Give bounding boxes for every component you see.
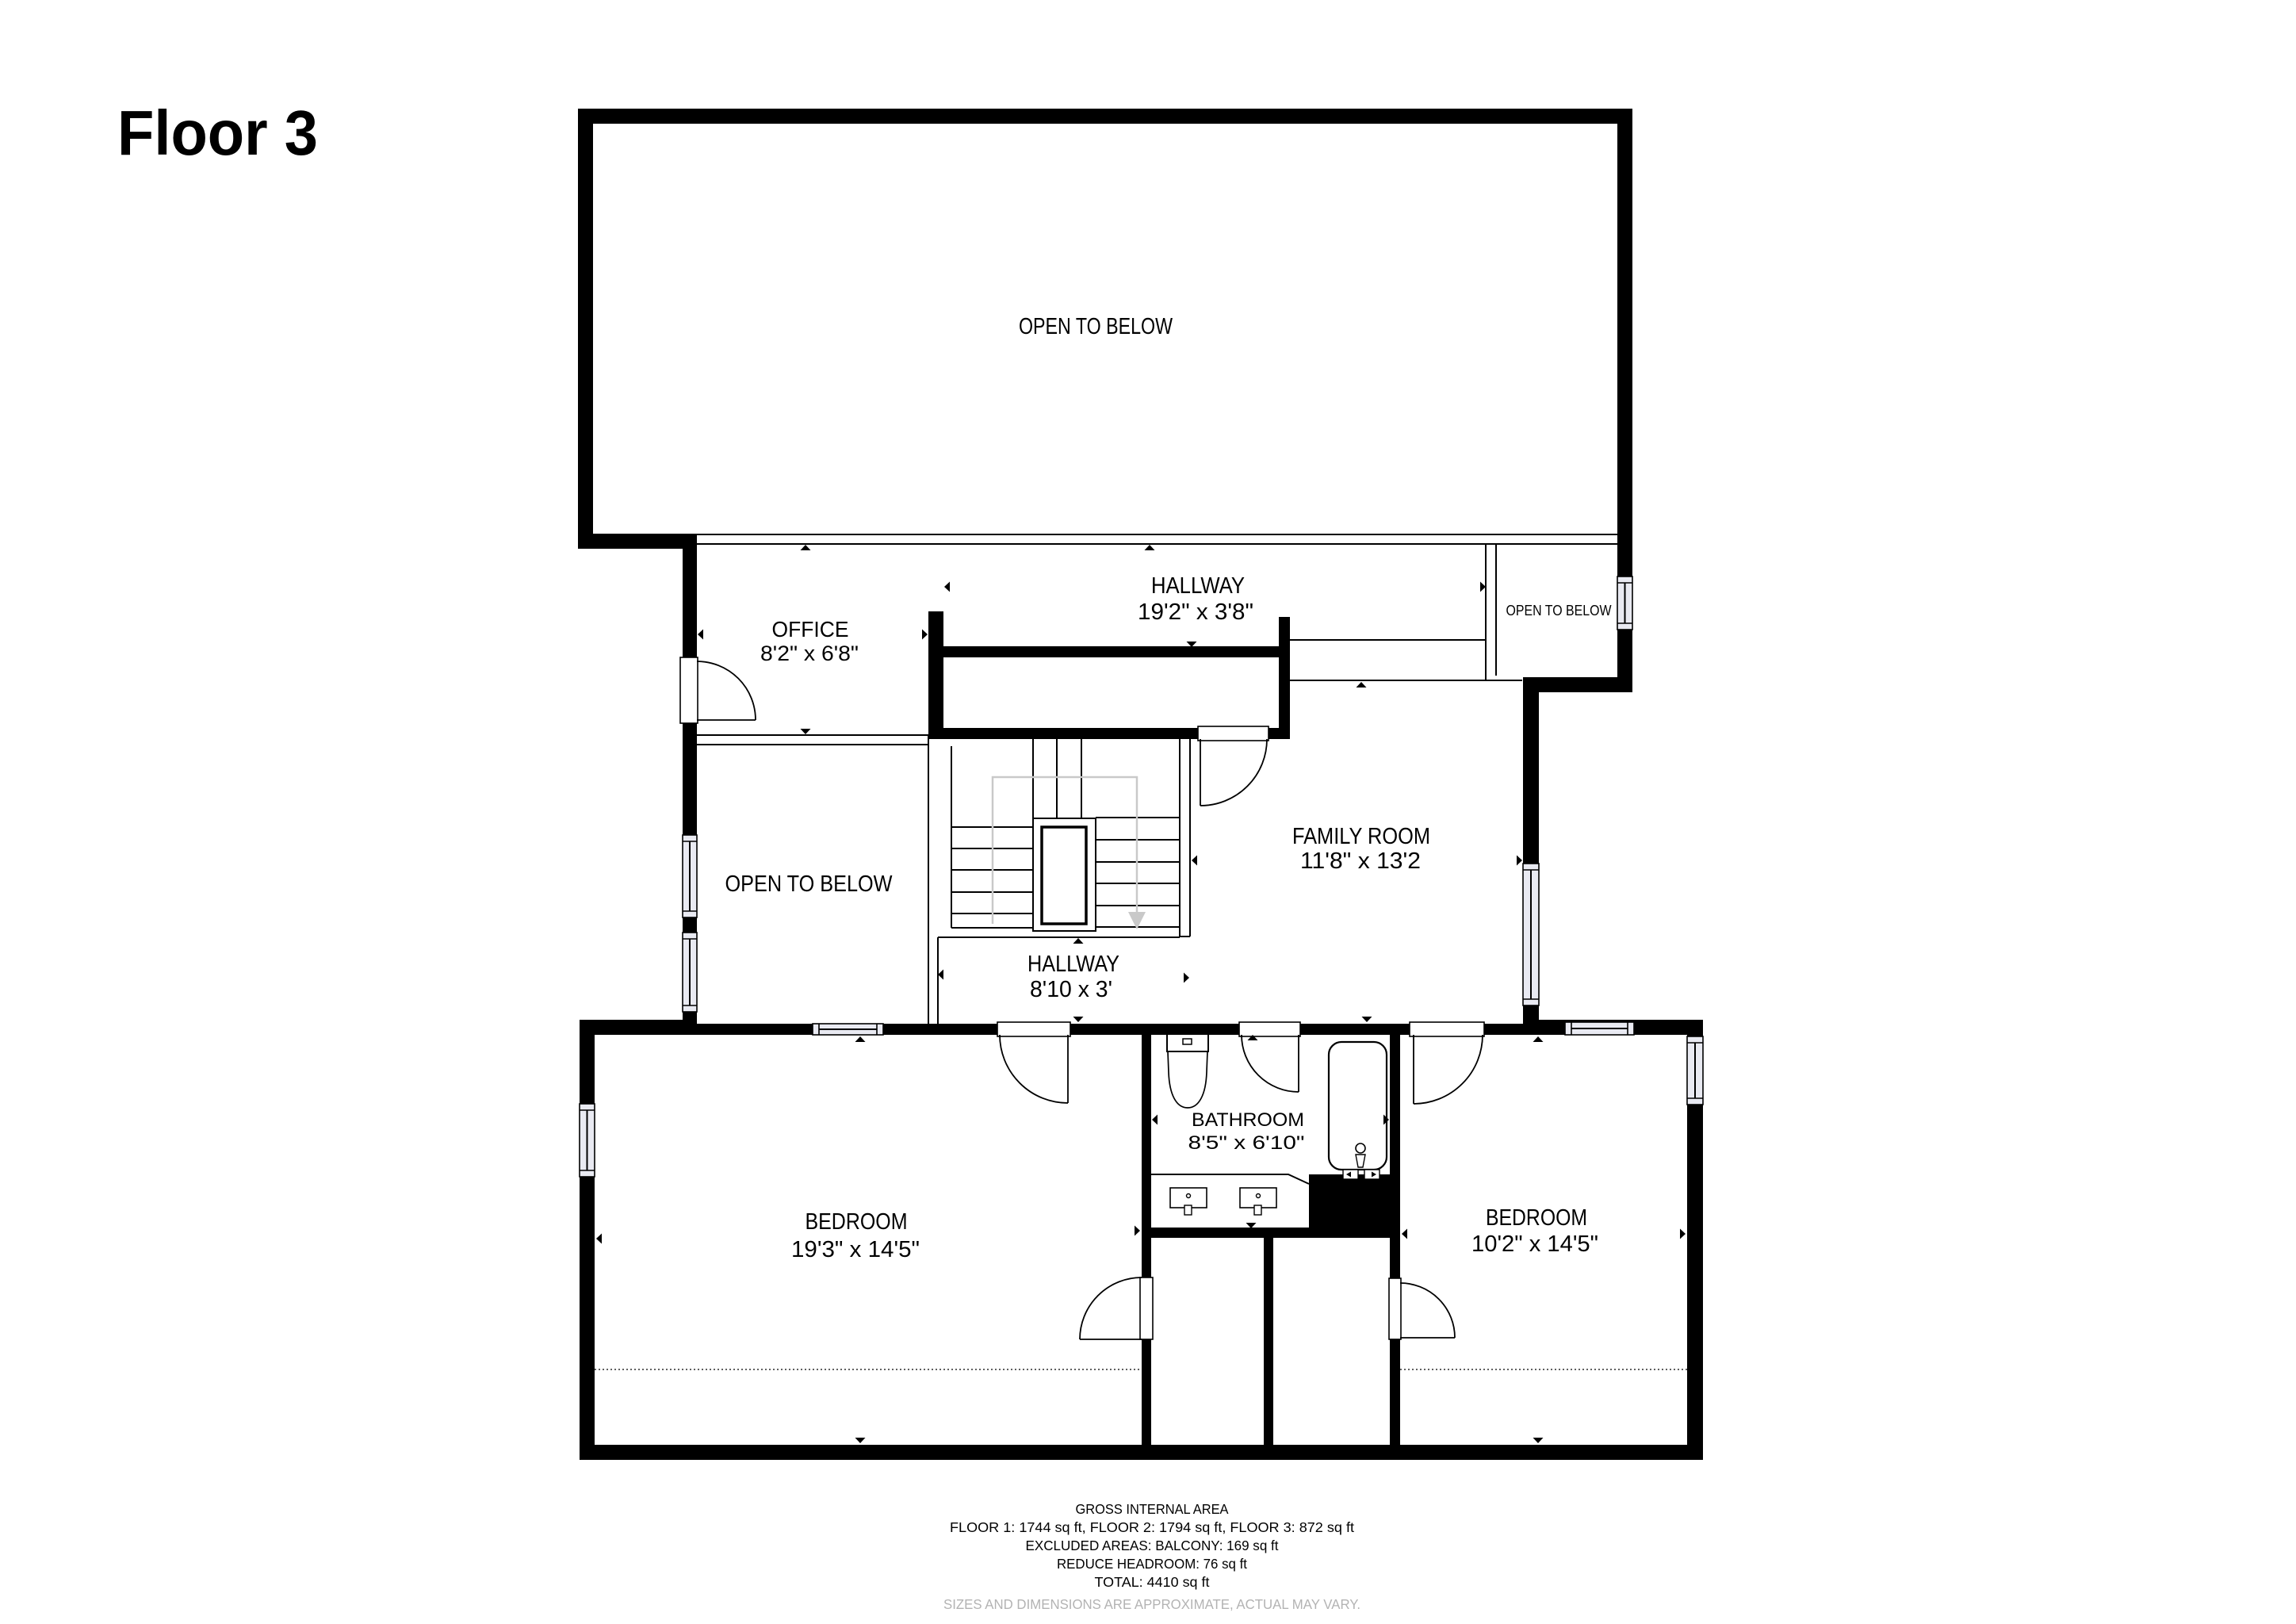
svg-text:8'2" x 6'8": 8'2" x 6'8" <box>760 642 859 665</box>
svg-text:SIZES AND DIMENSIONS ARE APPRO: SIZES AND DIMENSIONS ARE APPROXIMATE, AC… <box>943 1596 1360 1612</box>
svg-text:TOTAL: 4410 sq ft: TOTAL: 4410 sq ft <box>1095 1574 1210 1590</box>
svg-text:GROSS INTERNAL AREA: GROSS INTERNAL AREA <box>1076 1501 1229 1517</box>
svg-text:19'2" x 3'8": 19'2" x 3'8" <box>1138 599 1253 625</box>
svg-text:BEDROOM: BEDROOM <box>806 1209 908 1235</box>
svg-text:OFFICE: OFFICE <box>772 617 849 642</box>
svg-text:11'8" x 13'2: 11'8" x 13'2 <box>1300 848 1421 874</box>
svg-text:OPEN TO BELOW: OPEN TO BELOW <box>725 871 894 897</box>
svg-text:FLOOR 1: 1744 sq ft, FLOOR 2:: FLOOR 1: 1744 sq ft, FLOOR 2: 1794 sq ft… <box>950 1519 1354 1535</box>
svg-text:19'3" x 14'5": 19'3" x 14'5" <box>791 1237 920 1262</box>
svg-text:OPEN TO BELOW: OPEN TO BELOW <box>1506 603 1612 619</box>
svg-text:BATHROOM: BATHROOM <box>1192 1109 1304 1131</box>
svg-text:10'2" x 14'5": 10'2" x 14'5" <box>1471 1231 1598 1257</box>
svg-text:BEDROOM: BEDROOM <box>1486 1205 1587 1231</box>
svg-text:EXCLUDED AREAS: BALCONY: 169 s: EXCLUDED AREAS: BALCONY: 169 sq ft <box>1026 1538 1279 1553</box>
svg-text:REDUCE HEADROOM: 76 sq ft: REDUCE HEADROOM: 76 sq ft <box>1057 1556 1247 1572</box>
svg-text:HALLWAY: HALLWAY <box>1151 573 1245 599</box>
svg-text:OPEN TO BELOW: OPEN TO BELOW <box>1019 314 1173 339</box>
svg-text:Floor 3: Floor 3 <box>117 98 318 168</box>
svg-text:8'10 x 3': 8'10 x 3' <box>1030 977 1112 1002</box>
svg-text:8'5" x 6'10": 8'5" x 6'10" <box>1188 1132 1305 1154</box>
svg-text:FAMILY ROOM: FAMILY ROOM <box>1292 824 1430 849</box>
svg-text:HALLWAY: HALLWAY <box>1027 952 1119 977</box>
